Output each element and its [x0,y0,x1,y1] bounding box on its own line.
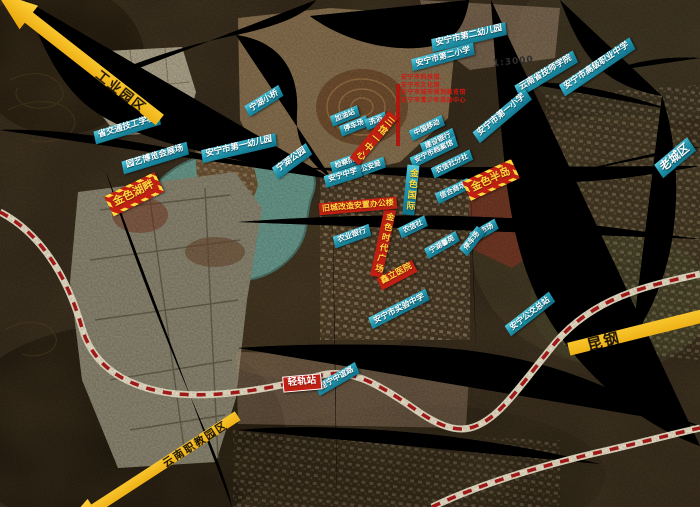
label-expo-garden: 园艺博览会展场 [121,142,188,174]
label-golden-lakeside: 金色湖畔 [104,172,164,216]
label-light-rail-station: 轻轨站 [282,373,322,392]
label-old-town: 老城区 [654,138,696,179]
label-kunning-road: 昆宁中谊路 [315,362,359,395]
label-vocational-school: 安宁市高级职业中学 [559,38,635,97]
label-experimental-school: 安宁市实验中学 [368,289,429,329]
arrow-industrial-park: 工业园区 [0,0,169,132]
label-ninghu-park: 宁湖公园 [272,143,312,179]
label-parking-2: 停车场 [459,226,485,257]
arrow-kungang: 昆钢 [565,290,700,364]
label-ninghu-xinyuan: 宁湖馨苑 [424,231,460,259]
label-golden-peninsula: 金色半岛 [462,159,520,201]
label-bus-terminal: 安宁公交总站 [505,292,556,337]
label-abc-bank: 农业银行 [333,224,372,248]
satellite-planning-map: 安宁市科技馆 安宁市文化馆 安宁市城市规划展览馆 安宁市青少年活动中心 1:30… [0,0,700,507]
arrow-yunnan-vocational-park: 云南职教园区 [52,406,245,507]
label-ninghu-bridge: 宁湖小桥 [244,85,283,117]
map-labels-layer: 省交通技工学校园艺博览会展场安宁市第一幼儿园宁湖小桥宁湖公园安宁市第二幼儿园安宁… [0,0,700,507]
label-no1-primary: 安宁市第一小学 [473,89,532,143]
label-golden-times-square: 金色时代广场 [370,208,396,278]
label-no1-kindergarten: 安宁市第一幼儿园 [201,133,277,163]
label-jinse-guoji: 金色国际 [402,164,420,215]
label-rcc: 农信社 [398,215,428,238]
